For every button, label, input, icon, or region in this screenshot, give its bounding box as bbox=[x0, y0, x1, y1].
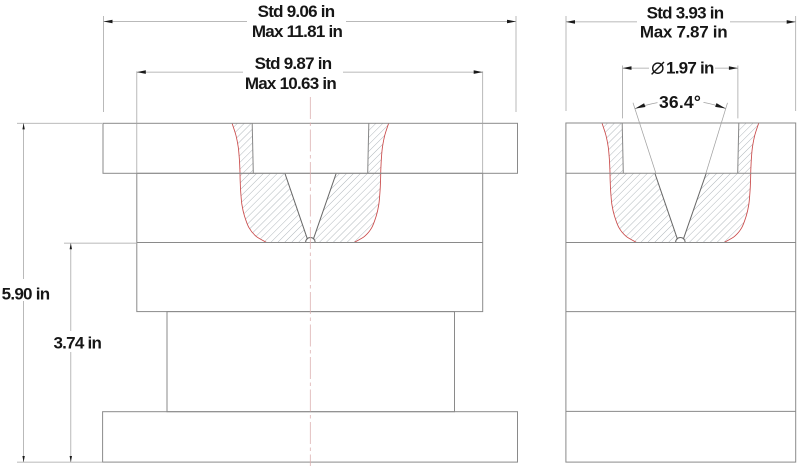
svg-text:36.4°: 36.4° bbox=[659, 92, 701, 112]
svg-text:3.74 in: 3.74 in bbox=[53, 333, 101, 352]
svg-text:Max 7.87 in: Max 7.87 in bbox=[640, 22, 727, 41]
svg-text:Max 10.63 in: Max 10.63 in bbox=[245, 74, 337, 93]
svg-text:5.90 in: 5.90 in bbox=[2, 285, 50, 304]
svg-text:Std 9.87 in: Std 9.87 in bbox=[255, 54, 332, 73]
svg-text:Std 3.93 in: Std 3.93 in bbox=[647, 4, 724, 23]
svg-text:Max 11.81 in: Max 11.81 in bbox=[252, 22, 343, 41]
svg-text:1.97 in: 1.97 in bbox=[666, 58, 714, 77]
svg-text:Std 9.06 in: Std 9.06 in bbox=[258, 2, 335, 21]
